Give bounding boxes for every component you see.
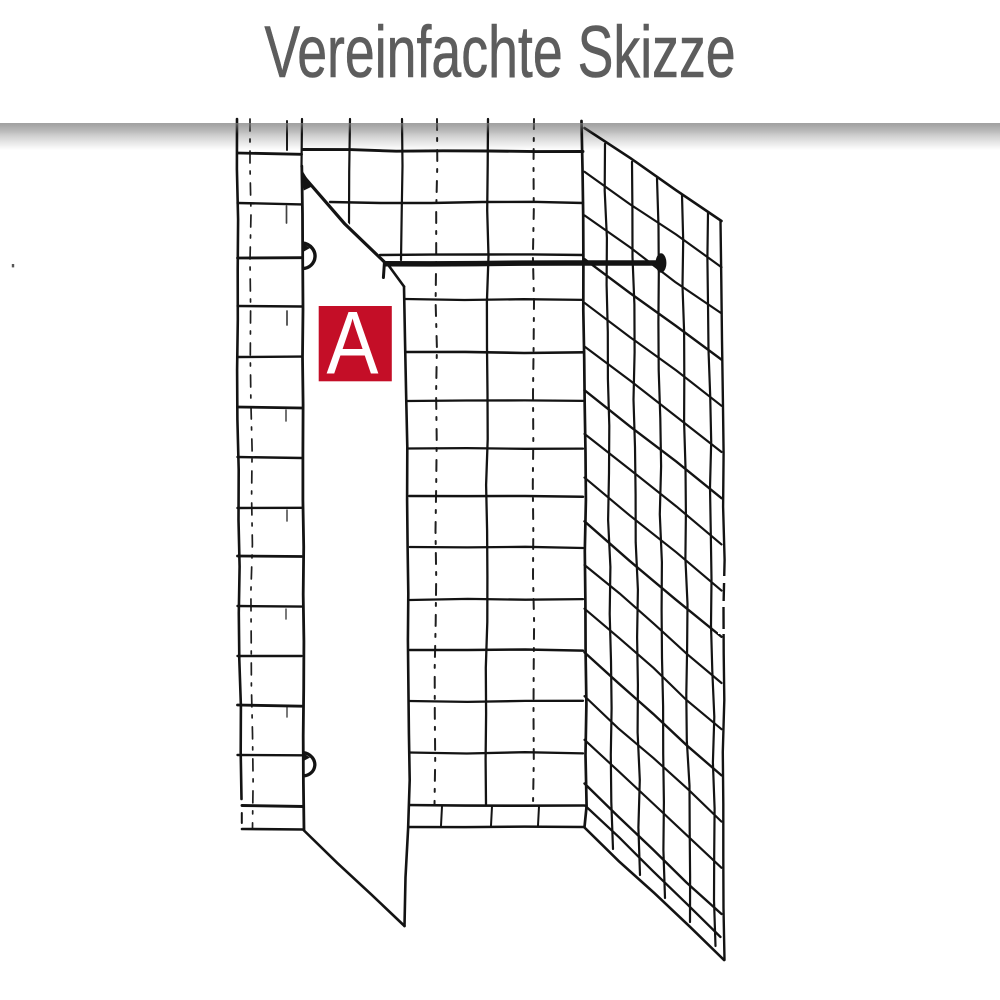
svg-text:A: A [327, 293, 380, 393]
